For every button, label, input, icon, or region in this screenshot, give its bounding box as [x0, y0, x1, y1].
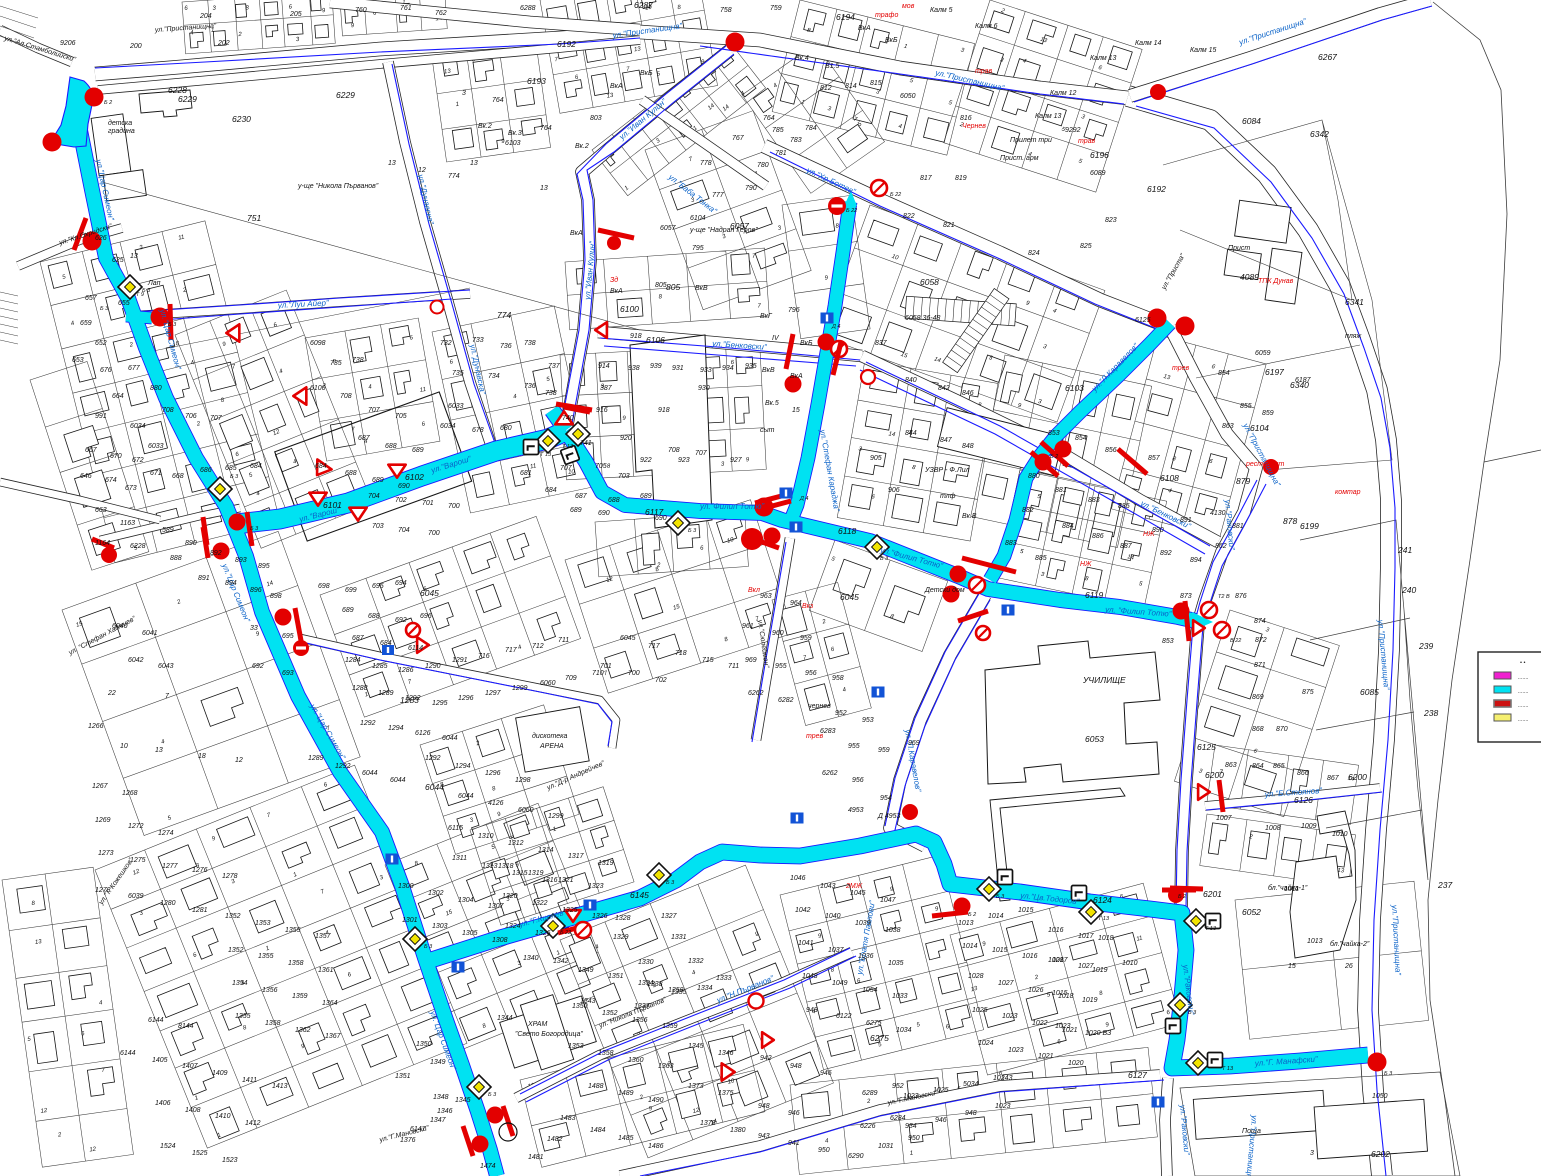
svg-text:1337: 1337 — [634, 1003, 651, 1010]
svg-text:814: 814 — [845, 83, 857, 90]
svg-text:1328: 1328 — [615, 915, 631, 922]
svg-text:891: 891 — [1180, 517, 1192, 524]
svg-text:1354: 1354 — [232, 980, 248, 987]
svg-text:701: 701 — [600, 663, 612, 670]
svg-text:6039: 6039 — [128, 893, 144, 900]
svg-text:6101: 6101 — [323, 500, 342, 510]
svg-text:Т 13: Т 13 — [1205, 926, 1217, 932]
svg-text:6058: 6058 — [920, 277, 939, 287]
svg-text:1296: 1296 — [485, 770, 501, 777]
svg-text:1292: 1292 — [335, 763, 351, 770]
svg-text:6085: 6085 — [1360, 687, 1379, 697]
svg-text:693: 693 — [282, 670, 294, 677]
svg-text:6229: 6229 — [336, 90, 355, 100]
svg-text:237: 237 — [1437, 880, 1452, 890]
svg-text:1380: 1380 — [730, 1127, 746, 1134]
svg-text:Детски дом: Детски дом — [924, 586, 965, 594]
svg-text:824: 824 — [1028, 250, 1040, 257]
svg-text:892: 892 — [1160, 550, 1172, 557]
svg-text:НЖ: НЖ — [1143, 531, 1155, 538]
svg-text:1298: 1298 — [515, 777, 531, 784]
svg-text:1353: 1353 — [568, 1043, 584, 1050]
svg-text:6044: 6044 — [458, 793, 474, 800]
svg-text:1016: 1016 — [1022, 953, 1038, 960]
svg-text:883: 883 — [1088, 497, 1100, 504]
svg-text:6201: 6201 — [1203, 889, 1222, 899]
svg-text:1316: 1316 — [542, 877, 558, 884]
svg-text:708: 708 — [162, 407, 174, 414]
svg-text:6290: 6290 — [848, 1153, 864, 1160]
svg-text:1007: 1007 — [1216, 815, 1233, 822]
svg-text:Б 3: Б 3 — [488, 1092, 497, 1098]
svg-text:1297: 1297 — [485, 690, 502, 697]
svg-text:918: 918 — [658, 407, 670, 414]
svg-text:6200: 6200 — [1348, 772, 1367, 782]
svg-text:1041: 1041 — [798, 940, 814, 947]
svg-text:764: 764 — [763, 115, 775, 122]
svg-text:.......: ....... — [1518, 717, 1529, 723]
svg-text:у-ще ”Надран Геров”: у-ще ”Надран Геров” — [689, 226, 758, 234]
svg-text:1304: 1304 — [458, 897, 474, 904]
svg-text:33: 33 — [250, 625, 258, 632]
svg-text:677: 677 — [128, 365, 141, 372]
svg-text:690: 690 — [655, 515, 667, 522]
svg-text:1525: 1525 — [192, 1150, 208, 1157]
svg-text:ТПК Дунав: ТПК Дунав — [1258, 278, 1294, 285]
svg-text:688: 688 — [608, 497, 620, 504]
svg-text:Вк.В: Вк.В — [962, 513, 977, 520]
svg-text:6119: 6119 — [1085, 590, 1104, 600]
svg-text:6060: 6060 — [518, 807, 534, 814]
svg-text:881: 881 — [1055, 487, 1067, 494]
svg-text:1319: 1319 — [598, 860, 614, 867]
svg-text:1345: 1345 — [688, 1043, 704, 1050]
svg-text:1333: 1333 — [716, 975, 732, 982]
svg-text:6342: 6342 — [1310, 129, 1329, 139]
svg-text:6044: 6044 — [390, 777, 406, 784]
svg-text:702: 702 — [395, 497, 407, 504]
svg-text:711: 711 — [558, 637, 569, 644]
svg-text:856: 856 — [1105, 447, 1117, 454]
svg-text:896: 896 — [250, 587, 262, 594]
svg-text:1351: 1351 — [608, 973, 624, 980]
svg-text:1289: 1289 — [308, 755, 324, 762]
svg-text:1035: 1035 — [888, 960, 904, 967]
svg-text:933: 933 — [700, 367, 712, 374]
svg-text:1050: 1050 — [1372, 1093, 1388, 1100]
svg-text:205: 205 — [289, 11, 302, 18]
svg-text:1296: 1296 — [458, 695, 474, 702]
svg-text:737: 737 — [548, 363, 561, 370]
svg-text:13: 13 — [540, 185, 548, 192]
svg-text:1027: 1027 — [998, 980, 1015, 987]
svg-text:1276: 1276 — [192, 867, 208, 874]
svg-text:676: 676 — [100, 367, 112, 374]
svg-text:1363: 1363 — [658, 1063, 674, 1070]
svg-text:1326: 1326 — [592, 913, 608, 920]
svg-text:733: 733 — [472, 337, 484, 344]
svg-text:1016: 1016 — [1048, 927, 1064, 934]
svg-text:964: 964 — [790, 600, 802, 607]
svg-text:1164: 1164 — [95, 540, 110, 547]
svg-text:.......: ....... — [1518, 675, 1529, 681]
svg-text:6194: 6194 — [836, 12, 855, 22]
svg-text:Б 3: Б 3 — [1384, 1071, 1393, 1077]
svg-text:853: 853 — [1162, 638, 1174, 645]
svg-text:1411: 1411 — [242, 1077, 257, 1084]
svg-text:Б 3: Б 3 — [666, 880, 675, 886]
svg-text:1028: 1028 — [968, 973, 984, 980]
svg-text:952: 952 — [835, 710, 847, 717]
svg-text:АРЕНА: АРЕНА — [539, 743, 564, 750]
svg-text:764: 764 — [492, 97, 504, 104]
svg-text:13: 13 — [130, 253, 138, 260]
svg-text:ВкВ: ВкВ — [695, 285, 708, 292]
svg-text:Т2 В: Т2 В — [1218, 594, 1230, 600]
svg-text:1043: 1043 — [820, 883, 836, 890]
svg-text:700: 700 — [428, 530, 440, 537]
svg-text:1025: 1025 — [933, 1087, 949, 1094]
svg-text:867: 867 — [1327, 775, 1340, 782]
svg-text:1335: 1335 — [671, 989, 687, 996]
svg-text:Б 3: Б 3 — [230, 474, 239, 480]
svg-text:Б 22: Б 22 — [890, 192, 901, 198]
svg-text:946: 946 — [935, 1117, 947, 1124]
svg-text:6187: 6187 — [1295, 377, 1312, 384]
svg-text:853: 853 — [1048, 430, 1060, 437]
svg-text:837: 837 — [875, 340, 888, 347]
svg-text:1019: 1019 — [1092, 967, 1108, 974]
svg-text:1049: 1049 — [832, 980, 848, 987]
svg-text:871: 871 — [1254, 662, 1266, 669]
svg-text:1367: 1367 — [325, 1033, 342, 1040]
svg-text:670: 670 — [110, 453, 122, 460]
svg-text:бл.”чайка-2”: бл.”чайка-2” — [1330, 940, 1370, 948]
svg-text:1021: 1021 — [1038, 1053, 1054, 1060]
svg-text:мов: мов — [902, 3, 915, 10]
svg-text:Т 13: Т 13 — [1222, 1066, 1234, 1072]
svg-text:ВкА: ВкА — [790, 373, 803, 380]
svg-text:1373: 1373 — [688, 1083, 704, 1090]
svg-text:1326: 1326 — [535, 930, 551, 937]
svg-text:9292: 9292 — [1065, 127, 1081, 134]
svg-text:870: 870 — [1276, 726, 1288, 733]
svg-text:1280: 1280 — [160, 900, 176, 907]
svg-text:1039: 1039 — [855, 920, 871, 927]
svg-text:Т 9: Т 9 — [136, 292, 144, 298]
svg-text:1319: 1319 — [528, 870, 544, 877]
svg-text:646: 646 — [80, 473, 92, 480]
svg-text:1327: 1327 — [661, 913, 678, 920]
svg-text:914: 914 — [598, 363, 610, 370]
svg-text:6115: 6115 — [448, 825, 463, 832]
svg-text:705: 705 — [595, 463, 607, 470]
svg-text:1042: 1042 — [795, 907, 811, 914]
svg-text:819: 819 — [955, 175, 967, 182]
svg-text:6042: 6042 — [128, 657, 144, 664]
svg-text:6126: 6126 — [1294, 795, 1313, 805]
svg-text:6104: 6104 — [690, 215, 706, 222]
svg-text:6267: 6267 — [1318, 52, 1337, 62]
svg-text:6282: 6282 — [778, 697, 794, 704]
svg-text:717: 717 — [505, 647, 518, 654]
svg-text:ВкГ: ВкГ — [760, 313, 773, 320]
svg-text:6193: 6193 — [527, 76, 546, 86]
svg-text:”Свето Богородица”: ”Свето Богородица” — [515, 1030, 584, 1038]
svg-text:857: 857 — [1148, 455, 1161, 462]
svg-text:1313: 1313 — [482, 863, 498, 870]
svg-text:657: 657 — [85, 295, 98, 302]
svg-text:790: 790 — [745, 185, 757, 192]
svg-text:Лап: Лап — [147, 280, 161, 287]
svg-text:1013: 1013 — [1307, 938, 1323, 945]
svg-text:1308: 1308 — [492, 937, 508, 944]
svg-text:1033: 1033 — [892, 993, 908, 1000]
svg-text:Вкз: Вкз — [802, 603, 814, 610]
svg-text:687: 687 — [575, 493, 588, 500]
svg-text:736: 736 — [500, 343, 512, 350]
svg-text:1489: 1489 — [618, 1090, 634, 1097]
svg-text:202: 202 — [217, 40, 230, 47]
svg-text:Прист: Прист — [1228, 245, 1250, 252]
svg-text:1292: 1292 — [425, 755, 441, 762]
svg-text:В1.5: В1.5 — [825, 63, 840, 70]
svg-text:6058 36-48: 6058 36-48 — [905, 315, 941, 322]
svg-text:1023: 1023 — [1002, 1013, 1018, 1020]
svg-text:953: 953 — [862, 717, 874, 724]
svg-text:Б 3: Б 3 — [250, 526, 259, 532]
svg-text:655: 655 — [118, 300, 130, 307]
svg-text:672: 672 — [132, 457, 144, 464]
svg-text:1015: 1015 — [1018, 907, 1034, 914]
svg-text:955: 955 — [848, 743, 860, 750]
svg-text:6145: 6145 — [630, 890, 649, 900]
svg-text:ВкА: ВкА — [570, 230, 583, 237]
svg-text:886: 886 — [1092, 533, 1104, 540]
svg-text:883: 883 — [1005, 540, 1017, 547]
svg-text:703: 703 — [372, 523, 384, 530]
svg-text:Вк.2: Вк.2 — [478, 123, 492, 130]
svg-text:1015: 1015 — [1052, 990, 1068, 997]
svg-text:681: 681 — [520, 470, 532, 477]
svg-text:706: 706 — [185, 413, 197, 420]
svg-text:.......: ....... — [1518, 689, 1529, 695]
svg-text:1524: 1524 — [160, 1143, 176, 1150]
svg-text:823: 823 — [1105, 217, 1117, 224]
svg-text:1310: 1310 — [478, 833, 494, 840]
svg-text:927: 927 — [730, 457, 743, 464]
svg-text:1350: 1350 — [416, 1041, 432, 1048]
svg-text:699: 699 — [345, 587, 357, 594]
svg-text:6044: 6044 — [442, 735, 458, 742]
svg-text:948: 948 — [965, 1110, 977, 1117]
svg-text:663: 663 — [95, 507, 107, 514]
svg-text:11: 11 — [419, 387, 426, 394]
svg-text:732: 732 — [440, 340, 452, 347]
svg-text:707: 707 — [695, 450, 708, 457]
svg-text:1486: 1486 — [648, 1143, 664, 1150]
svg-text:1292: 1292 — [405, 695, 421, 702]
svg-text:1013: 1013 — [958, 920, 974, 927]
svg-text:1375: 1375 — [718, 1090, 734, 1097]
svg-text:718: 718 — [675, 650, 687, 657]
svg-text:1278: 1278 — [95, 887, 111, 894]
svg-text:6230: 6230 — [232, 114, 251, 124]
svg-text:1302: 1302 — [428, 890, 444, 897]
svg-text:1344: 1344 — [497, 1015, 513, 1022]
svg-text:6122: 6122 — [836, 1013, 852, 1020]
svg-text:816: 816 — [960, 115, 972, 122]
svg-text:894: 894 — [1190, 557, 1202, 564]
svg-text:6045: 6045 — [840, 592, 859, 602]
svg-text:952: 952 — [892, 1083, 904, 1090]
svg-text:6262: 6262 — [748, 690, 764, 697]
svg-text:6041: 6041 — [142, 630, 158, 637]
svg-text:УЗВР - Ф.Лил: УЗВР - Ф.Лил — [924, 467, 970, 474]
svg-text:848: 848 — [962, 443, 974, 450]
svg-text:Калм 5: Калм 5 — [930, 7, 953, 14]
svg-text:4130: 4130 — [1210, 510, 1226, 517]
svg-text:696: 696 — [420, 613, 432, 620]
svg-text:трафо: трафо — [875, 12, 898, 19]
svg-text:5034: 5034 — [963, 1081, 979, 1088]
svg-text:1352: 1352 — [225, 913, 241, 920]
svg-text:УЧИЛИЩЕ: УЧИЛИЩЕ — [1082, 675, 1126, 685]
svg-text:659: 659 — [80, 320, 92, 327]
svg-text:667: 667 — [85, 447, 98, 454]
svg-text:• •: • • — [1520, 660, 1525, 666]
svg-text:204: 204 — [199, 13, 212, 20]
svg-text:960: 960 — [772, 630, 784, 637]
svg-text:6196: 6196 — [1090, 150, 1109, 160]
svg-text:941: 941 — [788, 1140, 800, 1147]
svg-text:6043: 6043 — [158, 663, 174, 670]
svg-text:781: 781 — [775, 150, 787, 157]
svg-text:881: 881 — [1232, 523, 1244, 530]
svg-text:942: 942 — [760, 1055, 772, 1062]
svg-text:689: 689 — [640, 493, 652, 500]
svg-text:6103: 6103 — [505, 140, 521, 147]
svg-text:863: 863 — [1225, 762, 1237, 769]
svg-text:954: 954 — [880, 795, 892, 802]
svg-text:1353: 1353 — [255, 920, 271, 927]
svg-text:668: 668 — [172, 473, 184, 480]
svg-text:701: 701 — [422, 500, 434, 507]
svg-text:1025: 1025 — [972, 1007, 988, 1014]
svg-text:1274: 1274 — [158, 830, 174, 837]
svg-text:Калм 13: Калм 13 — [1090, 55, 1117, 62]
svg-text:1343: 1343 — [580, 998, 596, 1005]
svg-text:1338: 1338 — [647, 981, 663, 988]
svg-text:Прист. арм: Прист. арм — [1000, 155, 1039, 162]
svg-text:991: 991 — [95, 413, 107, 420]
svg-text:868: 868 — [1252, 726, 1264, 733]
svg-text:1300: 1300 — [398, 883, 414, 890]
svg-text:1345: 1345 — [455, 1097, 471, 1104]
svg-text:934: 934 — [905, 1123, 917, 1130]
svg-text:ресторант: ресторант — [1245, 461, 1284, 468]
svg-text:трев: трев — [1172, 365, 1190, 372]
svg-text:1275: 1275 — [130, 857, 146, 864]
svg-text:1295: 1295 — [432, 700, 448, 707]
svg-text:1291: 1291 — [452, 657, 468, 664]
svg-text:950: 950 — [908, 1135, 920, 1142]
svg-text:9206: 9206 — [60, 40, 76, 47]
svg-text:1355: 1355 — [258, 953, 274, 960]
svg-text:1523: 1523 — [222, 1157, 238, 1164]
svg-text:709: 709 — [565, 675, 577, 682]
svg-text:сыт: сыт — [760, 427, 775, 434]
svg-text:684: 684 — [250, 463, 262, 470]
svg-text:1026: 1026 — [1028, 987, 1044, 994]
svg-text:1286: 1286 — [398, 667, 414, 674]
svg-text:1267: 1267 — [92, 783, 109, 790]
svg-text:678: 678 — [472, 427, 484, 434]
svg-text:Вк.3: Вк.3 — [508, 130, 522, 137]
svg-text:1485: 1485 — [618, 1135, 634, 1142]
svg-text:1482: 1482 — [547, 1136, 563, 1143]
svg-text:735: 735 — [330, 360, 342, 367]
svg-text:6052: 6052 — [1242, 907, 1261, 917]
svg-text:1047: 1047 — [880, 897, 897, 904]
svg-text:625: 625 — [112, 257, 124, 264]
svg-text:6228: 6228 — [168, 85, 187, 95]
svg-text:684: 684 — [545, 487, 557, 494]
svg-text:751: 751 — [247, 213, 261, 223]
svg-text:6144: 6144 — [120, 1050, 136, 1057]
svg-text:963: 963 — [760, 593, 772, 600]
svg-text:6226: 6226 — [860, 1123, 876, 1130]
svg-text:Поща: Поща — [1242, 1128, 1261, 1135]
svg-text:692: 692 — [252, 663, 264, 670]
svg-text:1307: 1307 — [488, 903, 505, 910]
svg-text:градина: градина — [108, 127, 135, 135]
svg-text:1481: 1481 — [528, 1154, 544, 1161]
svg-text:894: 894 — [225, 580, 237, 587]
svg-text:6045: 6045 — [420, 588, 439, 598]
svg-text:887: 887 — [1120, 543, 1133, 550]
svg-text:735: 735 — [452, 370, 464, 377]
svg-text:6114: 6114 — [408, 645, 423, 652]
svg-text:1484: 1484 — [590, 1127, 606, 1134]
svg-text:12: 12 — [418, 167, 426, 174]
svg-text:708: 708 — [668, 447, 680, 454]
svg-text:1474: 1474 — [480, 1163, 496, 1170]
svg-text:Калм 15: Калм 15 — [1190, 47, 1217, 54]
svg-text:854: 854 — [1075, 435, 1087, 442]
svg-text:6057: 6057 — [660, 225, 677, 232]
svg-text:Б 2: Б 2 — [968, 912, 976, 918]
svg-text:ХРАМ: ХРАМ — [527, 1021, 547, 1028]
svg-text:1376: 1376 — [400, 1137, 416, 1144]
svg-text:741: 741 — [580, 440, 592, 447]
svg-text:1347: 1347 — [430, 1117, 447, 1124]
svg-text:1352: 1352 — [602, 1010, 618, 1017]
svg-text:690: 690 — [398, 483, 410, 490]
svg-text:1305: 1305 — [462, 930, 478, 937]
svg-text:704: 704 — [398, 527, 410, 534]
svg-text:Б 3: Б 3 — [880, 556, 889, 562]
svg-text:817: 817 — [920, 175, 933, 182]
svg-text:958: 958 — [832, 675, 844, 682]
svg-text:812: 812 — [820, 85, 832, 92]
svg-text:6125: 6125 — [1197, 742, 1216, 752]
svg-text:690: 690 — [598, 510, 610, 517]
svg-text:Т 13: Т 13 — [540, 452, 552, 458]
svg-text:711: 711 — [728, 663, 739, 670]
svg-text:1023: 1023 — [1055, 1023, 1071, 1030]
svg-text:4126: 4126 — [488, 800, 504, 807]
